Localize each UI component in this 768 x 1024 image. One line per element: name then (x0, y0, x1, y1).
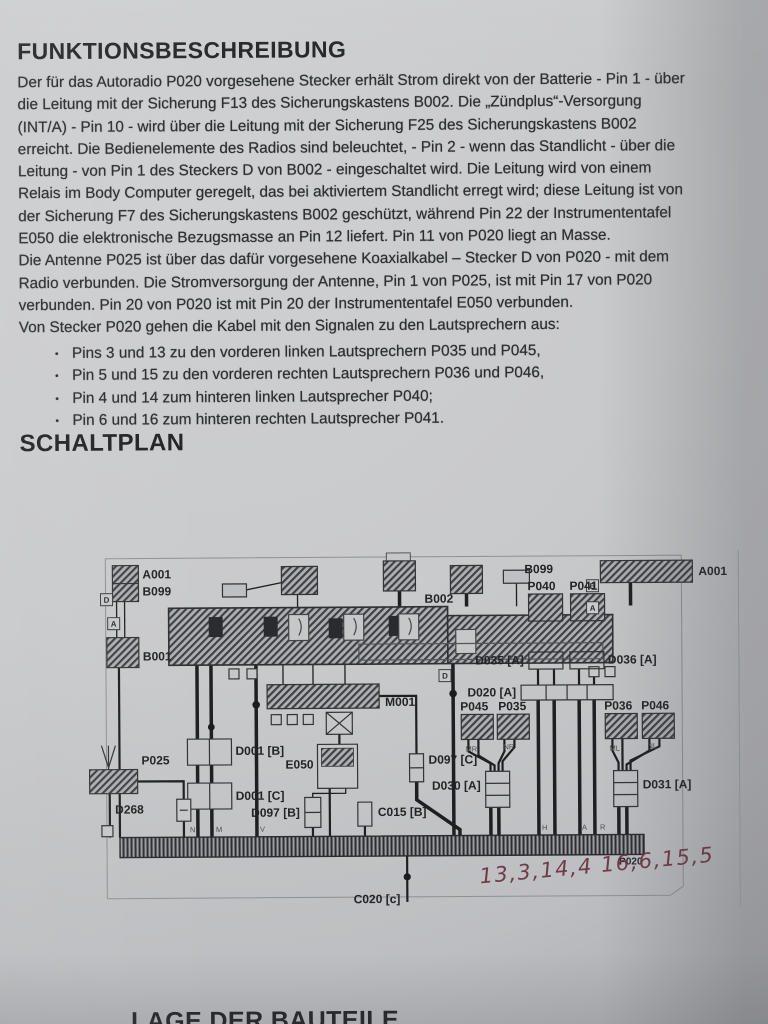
label-c015-b: C015 [B] (378, 805, 427, 819)
label-a001-top: A001 (698, 564, 727, 578)
label-m001: M001 (385, 695, 415, 709)
svg-text:H: H (542, 823, 547, 832)
svg-text:D: D (104, 596, 110, 605)
label-b001: B001 (143, 649, 172, 663)
svg-text:A: A (111, 620, 117, 629)
label-d001-c: D001 [C] (236, 789, 285, 803)
svg-text:NR: NR (503, 742, 514, 751)
svg-text:MR: MR (465, 744, 477, 753)
label-e050: E050 (285, 757, 313, 771)
svg-text:NL: NL (647, 741, 657, 750)
m001-body-computer (267, 684, 379, 735)
label-p045: P045 (460, 699, 488, 713)
label-d030-a: D030 [A] (432, 778, 481, 792)
label-d036-a: D036 [A] (608, 652, 657, 666)
scanned-page: FUNKTIONSBESCHREIBUNG Der für das Autora… (0, 0, 768, 1024)
label-p041: P041 (569, 579, 597, 593)
p025-antenna (89, 746, 137, 794)
label-p040: P040 (527, 579, 555, 593)
p020-connector-bar (120, 834, 644, 857)
front-speakers (461, 713, 675, 807)
svg-text:V: V (260, 825, 265, 834)
photo-of-document: FUNKTIONSBESCHREIBUNG Der für das Autora… (0, 0, 768, 1024)
label-b099-top-left: B099 (142, 584, 171, 598)
label-b002: B002 (424, 592, 453, 606)
svg-text:A: A (590, 604, 596, 613)
label-a001-top-left: A001 (142, 567, 171, 581)
label-p025: P025 (141, 753, 169, 767)
svg-text:M: M (216, 825, 222, 834)
label-d268: D268 (115, 802, 144, 816)
svg-text:D: D (442, 672, 448, 681)
svg-text:ML: ML (609, 744, 619, 753)
label-p036: P036 (604, 698, 632, 712)
label-p046: P046 (641, 698, 669, 712)
label-d097-b: D097 [B] (251, 806, 300, 820)
label-p035: P035 (498, 699, 526, 713)
bottom-cut-heading: LAGE DER BAUTEILE (131, 1006, 399, 1024)
label-d001-b: D001 [B] (235, 744, 284, 758)
label-c020-c: C020 [c] (354, 892, 401, 906)
label-d035-a: D035 [A] (475, 653, 524, 667)
svg-text:R: R (600, 823, 606, 832)
svg-text:A: A (582, 823, 587, 832)
label-d031-a: D031 [A] (643, 777, 692, 791)
wiring-diagram: D A B A D A001 B099 B099 A001 B002 B001 … (0, 0, 768, 1024)
label-d097-c: D097 [C] (428, 752, 477, 766)
label-d020-a: D020 [A] (467, 685, 516, 699)
label-b099-top: B099 (524, 562, 553, 576)
svg-text:N: N (190, 825, 195, 834)
